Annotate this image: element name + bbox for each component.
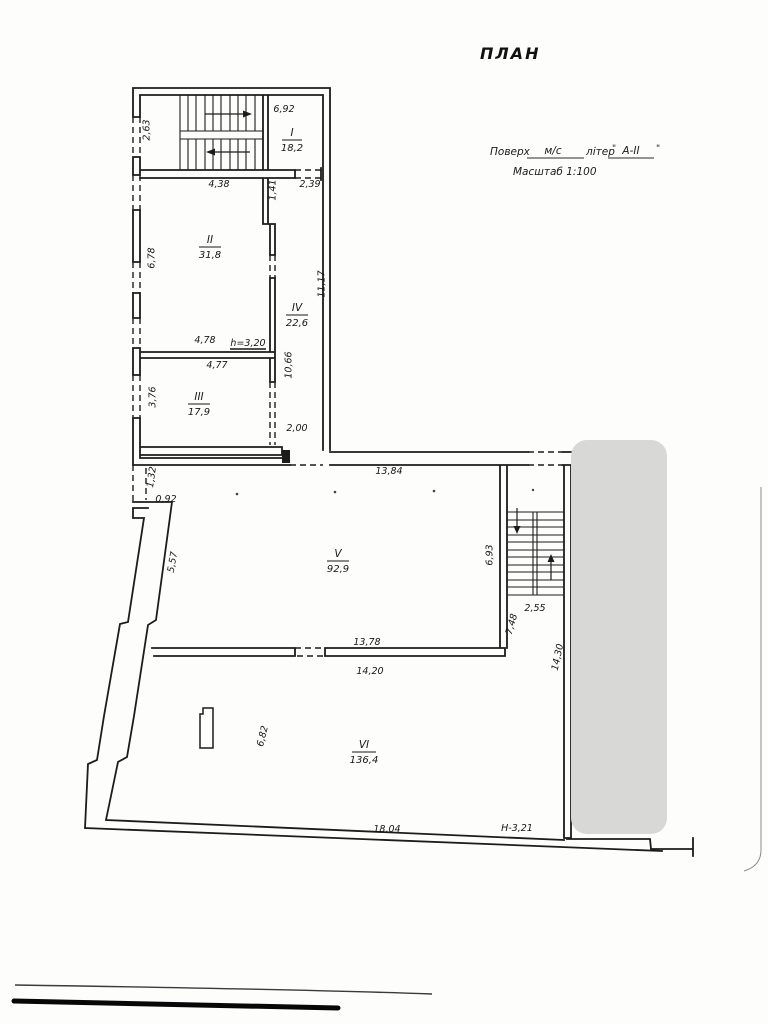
stair2-up-arrowhead bbox=[548, 554, 555, 562]
dim-corridor-mid: 10,66 bbox=[284, 351, 295, 378]
staircase-upper bbox=[180, 95, 263, 170]
dim-room3-left: 3,76 bbox=[148, 386, 159, 407]
staircase-right bbox=[507, 508, 564, 595]
dim-room5-right: 6,93 bbox=[485, 544, 496, 565]
dim-ceiling-height: h=3,20 bbox=[230, 338, 265, 349]
room-area: 92,9 bbox=[327, 564, 349, 575]
dim-corridor-top-width: 1,41 bbox=[268, 179, 279, 200]
room-number: III bbox=[194, 391, 203, 403]
room-label-V: V 92,9 bbox=[327, 548, 349, 575]
room-number: II bbox=[207, 234, 213, 246]
dim-room6-top: 14,20 bbox=[356, 666, 383, 677]
floor-value: м/с bbox=[544, 145, 561, 157]
room-label-II: II 31,8 bbox=[199, 234, 221, 261]
dim-room2-bottom: 4,78 bbox=[194, 335, 215, 346]
scale-label: Масштаб 1:100 bbox=[513, 166, 597, 178]
liter-label: літер bbox=[585, 146, 615, 158]
room-number: I bbox=[290, 127, 293, 139]
stair2-down-arrowhead bbox=[514, 526, 521, 534]
room-number: IV bbox=[292, 302, 303, 314]
dim-passage-width: 2,39 bbox=[299, 179, 320, 190]
floor-label: Поверх bbox=[490, 146, 531, 158]
page-crease-line bbox=[744, 487, 761, 871]
stair-down-arrowhead bbox=[206, 149, 215, 156]
dim-room5-bottom: 13,78 bbox=[353, 637, 380, 648]
column bbox=[200, 708, 213, 748]
scanned-floor-plan-page: ПЛАН Поверх м/с літер " А-ІІ " Масштаб 1… bbox=[0, 0, 768, 1024]
room-area: 136,4 bbox=[350, 755, 379, 766]
dim-stair-hall-width: 6,92 bbox=[273, 104, 294, 115]
plan-title: ПЛАН bbox=[480, 44, 540, 63]
dim-wall-step-top: 0,92 bbox=[155, 494, 176, 505]
dim-room3-top: 4,77 bbox=[206, 360, 227, 371]
level-mark: Н-3,21 bbox=[501, 823, 533, 834]
title-block: Поверх м/с літер " А-ІІ " Масштаб 1:100 bbox=[490, 144, 660, 178]
dim-vestibule-depth: 2,63 bbox=[142, 119, 153, 140]
scan-line-thin bbox=[15, 985, 432, 994]
wall-pillar bbox=[282, 450, 290, 463]
room-area: 17,9 bbox=[188, 407, 210, 418]
dim-room6-bottom: 18,04 bbox=[373, 824, 400, 835]
openings-dashed bbox=[133, 117, 563, 656]
liter-quote-close: " bbox=[656, 144, 660, 154]
dim-room5-left-slant: 5,57 bbox=[166, 551, 181, 574]
dim-corridor-bottom-width: 2,00 bbox=[286, 423, 307, 434]
stair-up-arrowhead bbox=[243, 111, 252, 118]
dim-room5-top: 13,84 bbox=[375, 466, 402, 477]
dim-wall-step-left: 1,32 bbox=[145, 466, 159, 488]
room-area: 22,6 bbox=[286, 318, 308, 329]
liter-quote-open: " bbox=[612, 144, 616, 154]
scan-specks bbox=[236, 489, 535, 496]
dim-room2-top: 4,38 bbox=[208, 179, 229, 190]
dim-corridor-length: 11,17 bbox=[317, 270, 328, 297]
room-label-I: I 18,2 bbox=[281, 127, 303, 154]
room-area: 31,8 bbox=[199, 250, 221, 261]
dimension-labels: 6,92 2,63 4,38 1,41 2,39 6,78 11,17 4,78… bbox=[142, 104, 567, 835]
liter-value: А-ІІ bbox=[621, 145, 639, 157]
room-area: 18,2 bbox=[281, 143, 303, 154]
dim-stair2-width: 2,55 bbox=[524, 603, 545, 614]
floor-plan-svg: ПЛАН Поверх м/с літер " А-ІІ " Масштаб 1… bbox=[0, 0, 768, 1024]
room-label-III: III 17,9 bbox=[188, 391, 210, 418]
scan-line-thick bbox=[14, 1001, 338, 1008]
dim-room2-left: 6,78 bbox=[147, 247, 158, 268]
redaction-box bbox=[571, 440, 667, 834]
dim-room6-left: 6,82 bbox=[255, 725, 271, 748]
room-label-IV: IV 22,6 bbox=[286, 302, 308, 329]
room-label-VI: VI 136,4 bbox=[350, 739, 379, 766]
room-number: V bbox=[334, 548, 342, 560]
room-number: VI bbox=[359, 739, 369, 751]
